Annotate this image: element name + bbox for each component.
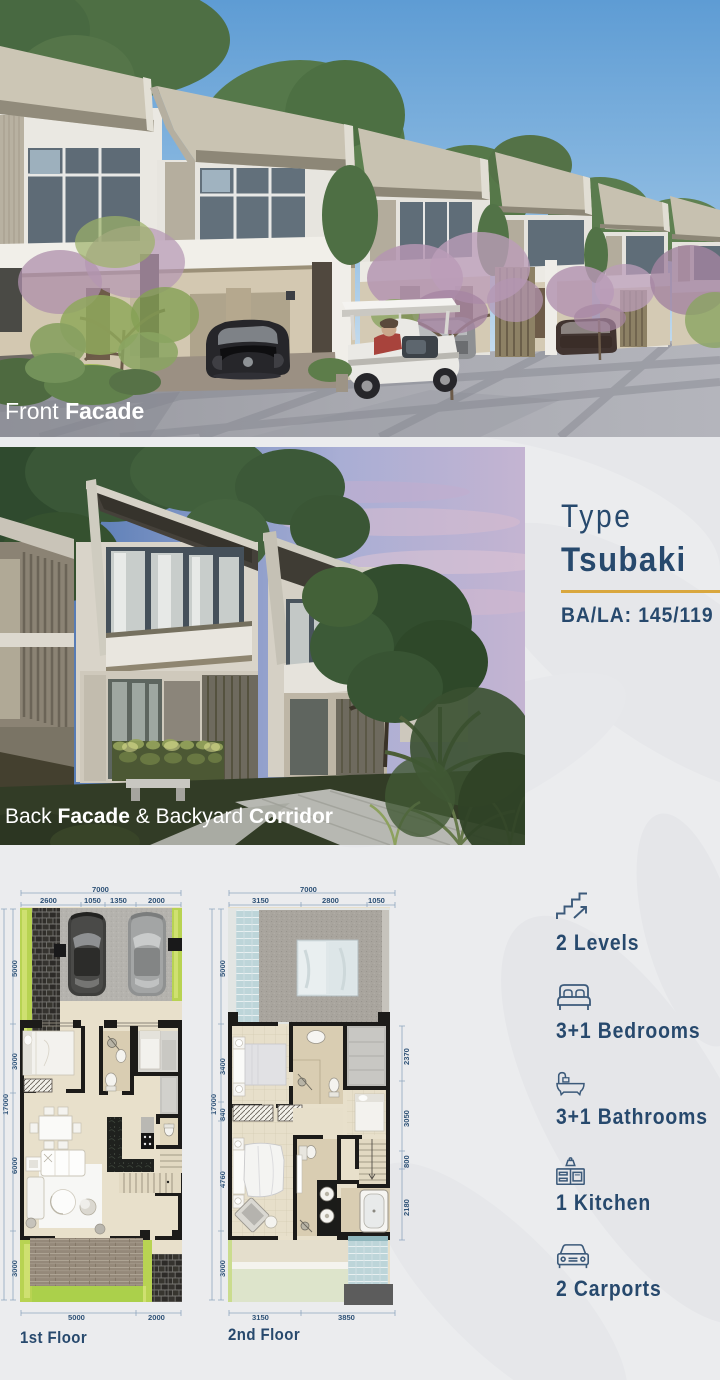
svg-text:2000: 2000 <box>148 1313 165 1322</box>
svg-text:3000: 3000 <box>10 1053 19 1070</box>
svg-text:3850: 3850 <box>338 1313 355 1322</box>
svg-text:1050: 1050 <box>84 896 101 905</box>
svg-text:2800: 2800 <box>322 896 339 905</box>
svg-text:3050: 3050 <box>402 1110 411 1127</box>
svg-text:3150: 3150 <box>252 896 269 905</box>
svg-text:2180: 2180 <box>402 1199 411 1216</box>
svg-text:2600: 2600 <box>40 896 57 905</box>
svg-text:1350: 1350 <box>110 896 127 905</box>
svg-text:3150: 3150 <box>252 1313 269 1322</box>
svg-text:5000: 5000 <box>10 960 19 977</box>
svg-text:2370: 2370 <box>402 1048 411 1065</box>
svg-text:800: 800 <box>402 1155 411 1168</box>
svg-text:Front Facade: Front Facade <box>5 398 144 424</box>
svg-text:5000: 5000 <box>218 960 227 977</box>
svg-text:1050: 1050 <box>368 896 385 905</box>
svg-text:840: 840 <box>218 1108 227 1121</box>
svg-text:4760: 4760 <box>218 1171 227 1188</box>
svg-text:2000: 2000 <box>148 896 165 905</box>
svg-text:17000: 17000 <box>209 1094 218 1115</box>
svg-text:3400: 3400 <box>218 1058 227 1075</box>
svg-text:6000: 6000 <box>10 1157 19 1174</box>
svg-text:Back Facade & Backyard Corrido: Back Facade & Backyard Corridor <box>5 805 333 828</box>
svg-text:3000: 3000 <box>218 1260 227 1277</box>
svg-text:5000: 5000 <box>68 1313 85 1322</box>
svg-text:3000: 3000 <box>10 1260 19 1277</box>
svg-text:17000: 17000 <box>1 1094 10 1115</box>
